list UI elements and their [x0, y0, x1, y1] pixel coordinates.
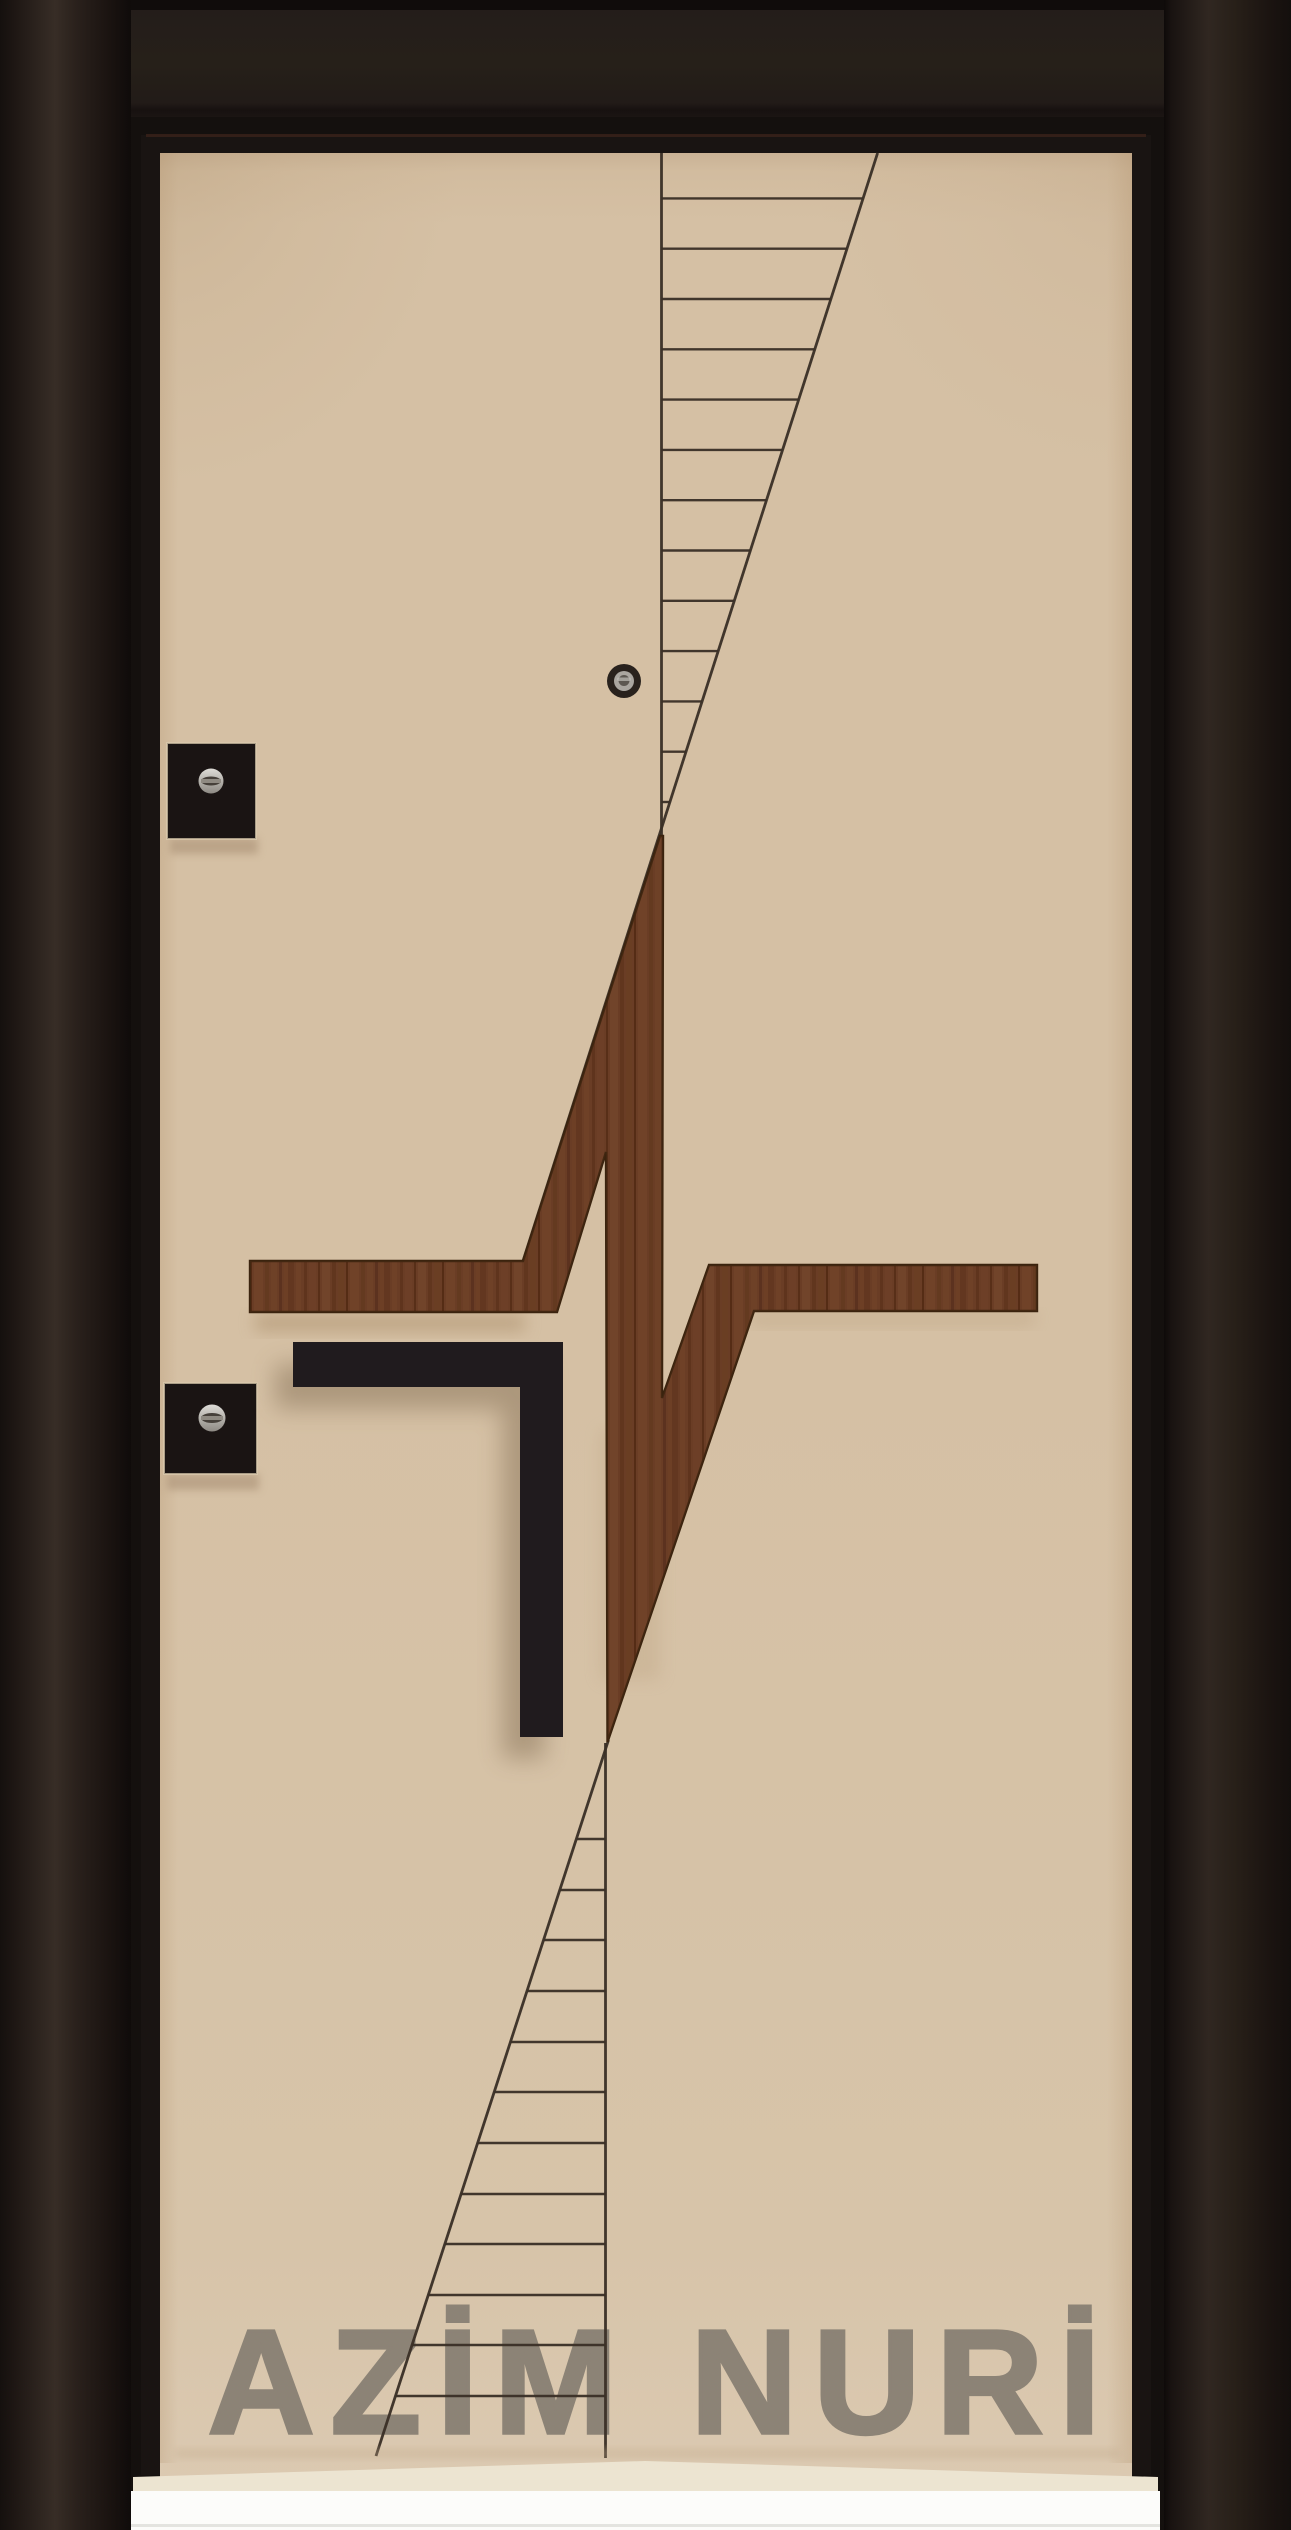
svg-text:AZİM NURİ: AZİM NURİ [208, 2300, 1117, 2465]
